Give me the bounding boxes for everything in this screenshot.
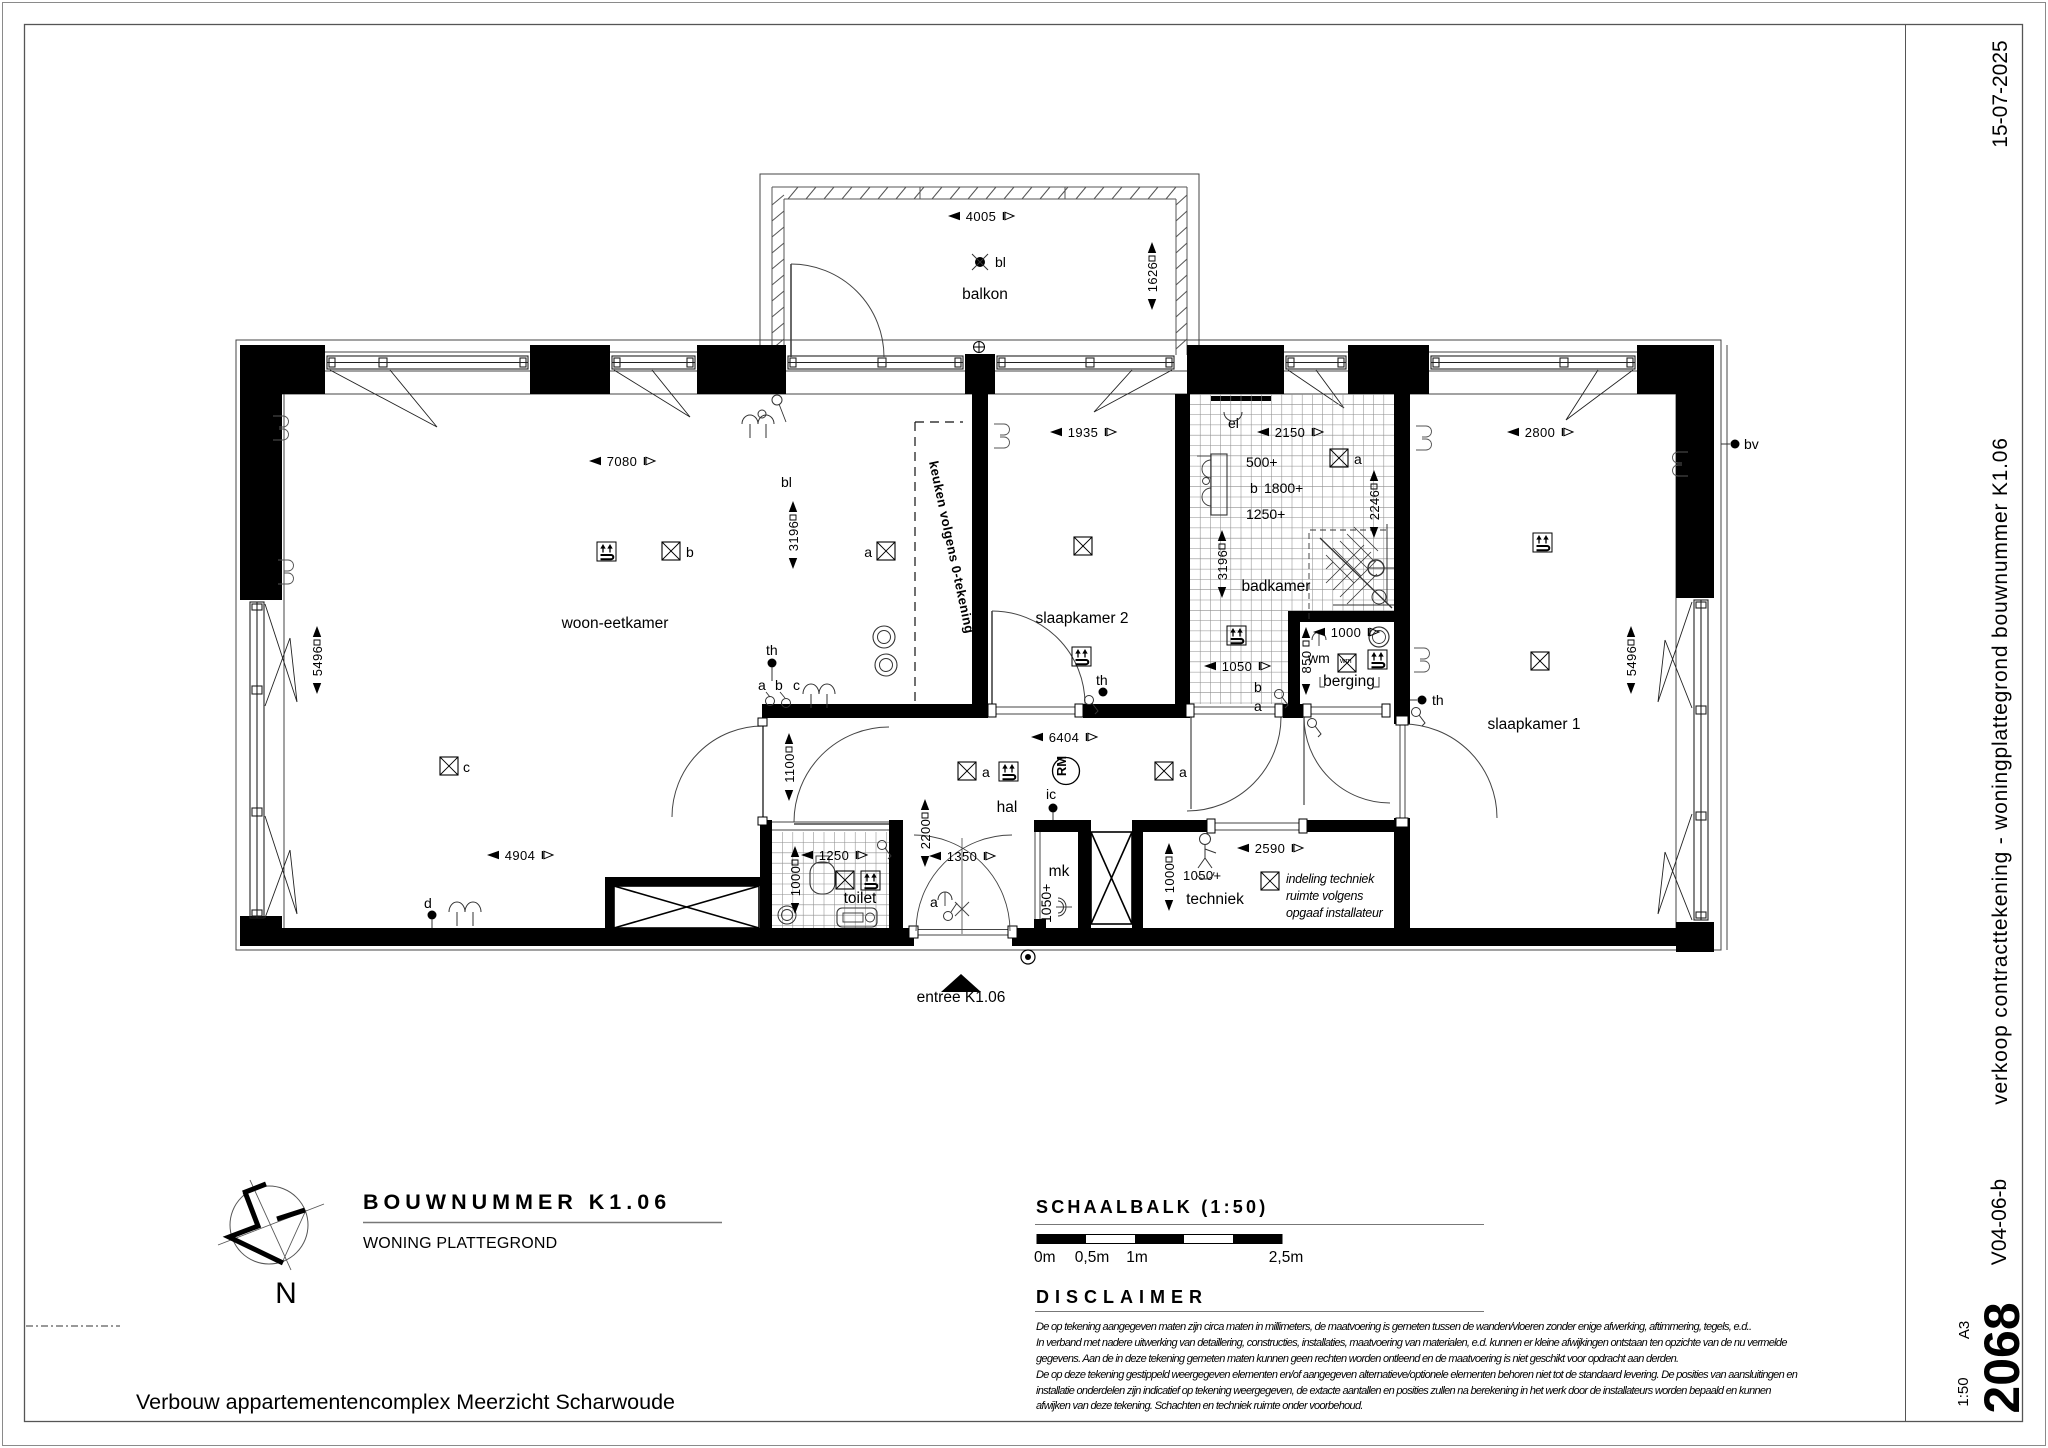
svg-text:1000: 1000	[1331, 625, 1362, 640]
svg-text:1100: 1100	[782, 753, 797, 783]
svg-text:1350: 1350	[947, 849, 978, 864]
svg-text:ic: ic	[1046, 786, 1056, 802]
svg-text:th: th	[1432, 692, 1444, 708]
svg-text:De op deze tekening gestippeld: De op deze tekening gestippeld weergegev…	[1036, 1369, 1798, 1381]
svg-text:c: c	[793, 677, 800, 693]
svg-text:6404: 6404	[1049, 730, 1080, 745]
svg-text:1800+: 1800+	[1264, 480, 1303, 496]
svg-text:A3: A3	[1956, 1321, 1973, 1339]
svg-text:2800: 2800	[1525, 425, 1556, 440]
svg-text:hal: hal	[997, 799, 1018, 816]
svg-text:verkoop contracttekening - won: verkoop contracttekening - woningplatteg…	[1989, 437, 2012, 1105]
svg-text:1000: 1000	[788, 866, 803, 897]
svg-text:bl: bl	[781, 474, 792, 490]
svg-text:el: el	[1228, 415, 1239, 431]
svg-text:woon-eetkamer: woon-eetkamer	[561, 615, 669, 632]
svg-text:b: b	[775, 677, 783, 693]
svg-text:SCHAALBALK (1:50): SCHAALBALK (1:50)	[1036, 1197, 1268, 1217]
svg-text:b: b	[1254, 679, 1262, 695]
svg-text:toilet: toilet	[844, 890, 877, 907]
svg-text:afwijken van deze tekening. Sc: afwijken van deze tekening. Schachten en…	[1036, 1400, 1363, 1412]
svg-text:bv: bv	[1744, 436, 1759, 452]
svg-text:1250+: 1250+	[1246, 506, 1285, 522]
svg-text:gegevens. Aan de in deze teken: gegevens. Aan de in deze tekening gemete…	[1036, 1353, 1678, 1365]
svg-text:slaapkamer 2: slaapkamer 2	[1035, 610, 1128, 627]
svg-text:15-07-2025: 15-07-2025	[1989, 40, 2012, 147]
svg-text:In verband met nadere uitwerki: In verband met nadere uitwerking van det…	[1036, 1337, 1787, 1349]
svg-text:2150: 2150	[1275, 425, 1306, 440]
svg-text:1000: 1000	[1162, 863, 1177, 894]
svg-text:1050+: 1050+	[1038, 884, 1054, 923]
svg-text:a: a	[982, 764, 990, 780]
svg-text:ruimte volgens: ruimte volgens	[1286, 889, 1363, 903]
svg-text:opgaaf installateur: opgaaf installateur	[1286, 906, 1384, 920]
svg-text:entree K1.06: entree K1.06	[917, 989, 1006, 1006]
svg-text:indeling techniek: indeling techniek	[1286, 872, 1375, 886]
svg-text:2590: 2590	[1255, 841, 1286, 856]
svg-text:1250: 1250	[819, 848, 850, 863]
svg-text:th: th	[766, 642, 778, 658]
svg-text:2200: 2200	[918, 819, 933, 850]
svg-text:1050: 1050	[1222, 659, 1253, 674]
svg-text:slaapkamer 1: slaapkamer 1	[1487, 716, 1580, 733]
svg-text:balkon: balkon	[962, 286, 1008, 303]
svg-text:WONING PLATTEGROND: WONING PLATTEGROND	[363, 1235, 557, 1252]
svg-text:b: b	[1250, 480, 1258, 496]
svg-text:Verbouw appartementencomplex M: Verbouw appartementencomplex Meerzicht S…	[136, 1390, 675, 1414]
svg-text:1626: 1626	[1145, 262, 1160, 293]
svg-text:4005: 4005	[966, 209, 997, 224]
svg-text:DISCLAIMER: DISCLAIMER	[1036, 1287, 1208, 1307]
svg-text:mk: mk	[1049, 863, 1070, 880]
svg-text:0,5m: 0,5m	[1075, 1249, 1109, 1266]
svg-text:a: a	[864, 544, 872, 560]
svg-text:2068: 2068	[1974, 1302, 2030, 1413]
svg-text:1050+: 1050+	[1183, 868, 1222, 883]
svg-text:3196: 3196	[786, 521, 801, 552]
svg-text:500+: 500+	[1246, 454, 1278, 470]
svg-text:N: N	[275, 1277, 297, 1310]
svg-text:1:50: 1:50	[1955, 1377, 1972, 1406]
svg-text:5496: 5496	[1624, 646, 1639, 677]
svg-text:a: a	[758, 677, 766, 693]
svg-text:1935: 1935	[1068, 425, 1099, 440]
svg-text:wm: wm	[1339, 656, 1352, 665]
svg-text:BOUWNUMMER K1.06: BOUWNUMMER K1.06	[363, 1190, 671, 1214]
svg-text:a: a	[1254, 698, 1262, 714]
svg-text:7080: 7080	[607, 454, 638, 469]
svg-text:a: a	[1354, 451, 1362, 467]
svg-text:bl: bl	[995, 254, 1006, 270]
svg-text:De op tekening aangegeven mate: De op tekening aangegeven maten zijn cir…	[1036, 1321, 1751, 1333]
svg-text:a: a	[930, 894, 938, 910]
svg-text:850: 850	[1299, 651, 1314, 674]
svg-text:berging: berging	[1323, 673, 1375, 690]
svg-text:techniek: techniek	[1186, 891, 1244, 908]
svg-text:c: c	[463, 759, 470, 775]
svg-text:d: d	[424, 895, 432, 911]
svg-text:2246: 2246	[1367, 490, 1382, 521]
svg-text:5496: 5496	[310, 646, 325, 677]
svg-text:2,5m: 2,5m	[1269, 1249, 1303, 1266]
svg-text:1m: 1m	[1126, 1249, 1148, 1266]
svg-text:badkamer: badkamer	[1242, 578, 1311, 595]
svg-text:0m: 0m	[1034, 1249, 1056, 1266]
svg-text:a: a	[1179, 764, 1187, 780]
svg-text:b: b	[686, 544, 694, 560]
svg-text:RM: RM	[1054, 756, 1069, 776]
svg-text:3196: 3196	[1215, 550, 1230, 581]
svg-text:installatie onderdelen zijn in: installatie onderdelen zijn indicatief o…	[1036, 1385, 1771, 1397]
svg-text:th: th	[1096, 672, 1108, 688]
svg-text:4904: 4904	[505, 848, 536, 863]
svg-text:V04-06-b: V04-06-b	[1988, 1179, 2011, 1265]
